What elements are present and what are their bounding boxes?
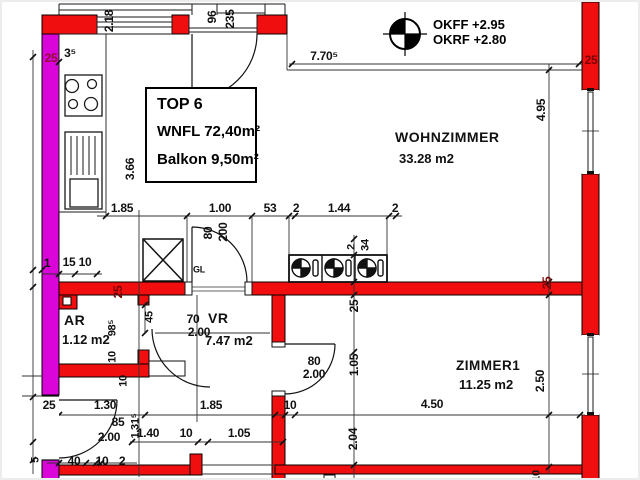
dimension-label: 80 — [308, 355, 321, 367]
dimension-label: 2 — [293, 202, 299, 214]
dimension-label: 10 — [96, 455, 109, 467]
dimension-label: 10 — [108, 351, 119, 363]
dimension-label: 2.00 — [98, 431, 120, 443]
apartment-info-box: TOP 6 WNFL 72,40m² Balkon 9,50m² — [145, 87, 257, 183]
dimension-label: 235 — [224, 9, 236, 28]
annotation-layer: TOP 6 WNFL 72,40m² Balkon 9,50m² OKFF +2… — [2, 2, 640, 480]
dimension-label: 4.50 — [421, 398, 443, 410]
dimension-label: 2 — [347, 244, 358, 250]
dimension-label: 2.04 — [347, 428, 359, 450]
dimension-label: 25 — [585, 54, 598, 66]
dimension-label: 7.70⁵ — [310, 50, 338, 62]
dimension-label: 1.85 — [111, 202, 133, 214]
dimension-label: 5 — [31, 457, 42, 463]
dimension-label: 4.95 — [535, 99, 547, 121]
dimension-label: 1.31⁵ — [131, 413, 142, 438]
apartment-id: TOP 6 — [157, 97, 203, 113]
dimension-label: 25 — [45, 52, 58, 64]
dimension-label: 25 — [112, 286, 124, 299]
room-area-wohnzimmer: 33.28 m2 — [399, 152, 454, 165]
dimension-label: 1.85 — [200, 399, 222, 411]
dimension-label: 2 — [119, 455, 125, 467]
dimension-label: 10 — [79, 256, 92, 268]
dimension-label: 200 — [217, 222, 229, 241]
dimension-label: 2 — [392, 202, 398, 214]
dimension-label: 80 — [202, 227, 214, 240]
dimension-label: 1.00 — [209, 202, 231, 214]
dimension-label: 98⁵ — [108, 320, 119, 337]
dimension-label: 1.30 — [94, 399, 116, 411]
dimension-label: GL — [193, 266, 205, 275]
dimension-label: 70 — [187, 313, 200, 325]
dimension-label: 2.50 — [534, 370, 546, 392]
balcony-area-label: Balkon 9,50m² — [157, 152, 259, 167]
dimension-label: 40 — [68, 455, 81, 467]
dimension-label: 3.66 — [124, 158, 136, 180]
dimension-label: 85 — [112, 416, 125, 428]
room-name-ar: AR — [64, 313, 85, 327]
dimension-label: 15 — [63, 256, 76, 268]
dimension-label: 3⁵ — [64, 47, 76, 59]
dimension-label: 2.00 — [188, 326, 210, 338]
dimension-label: 45 — [145, 311, 156, 323]
dimension-label: 1.05 — [348, 354, 360, 376]
room-area-vr: 7.47 m2 — [205, 334, 253, 347]
room-name-vr: VR — [208, 311, 228, 325]
dimension-label: 10 — [119, 375, 130, 387]
dimension-label: 25 — [43, 399, 56, 411]
room-name-zimmer1: ZIMMER1 — [456, 359, 520, 373]
room-area-zimmer1: 11.25 m2 — [459, 378, 513, 391]
living-area-label: WNFL 72,40m² — [157, 124, 260, 139]
dimension-label: 1 — [44, 257, 50, 269]
dimension-label: 34 — [361, 239, 372, 251]
dimension-label: 25 — [348, 300, 360, 313]
dimension-label: 1.44 — [328, 202, 350, 214]
dimension-label: 25 — [541, 277, 553, 290]
room-name-wohnzimmer: WOHNZIMMER — [395, 130, 500, 144]
floor-plan-canvas: TOP 6 WNFL 72,40m² Balkon 9,50m² OKFF +2… — [0, 0, 640, 480]
dimension-label: 10 — [532, 470, 543, 480]
level-okff: OKFF +2.95 — [433, 18, 505, 31]
room-area-ar: 1.12 m2 — [62, 333, 110, 346]
dimension-label: 10 — [284, 399, 297, 411]
dimension-label: 53 — [264, 202, 277, 214]
dimension-label: 2.00 — [303, 368, 325, 380]
dimension-label: 10 — [180, 427, 193, 439]
dimension-label: 1.05 — [228, 427, 250, 439]
level-okrf: OKRF +2.80 — [433, 33, 506, 46]
dimension-label: 2.18 — [103, 10, 115, 32]
dimension-label: 96 — [206, 11, 218, 24]
